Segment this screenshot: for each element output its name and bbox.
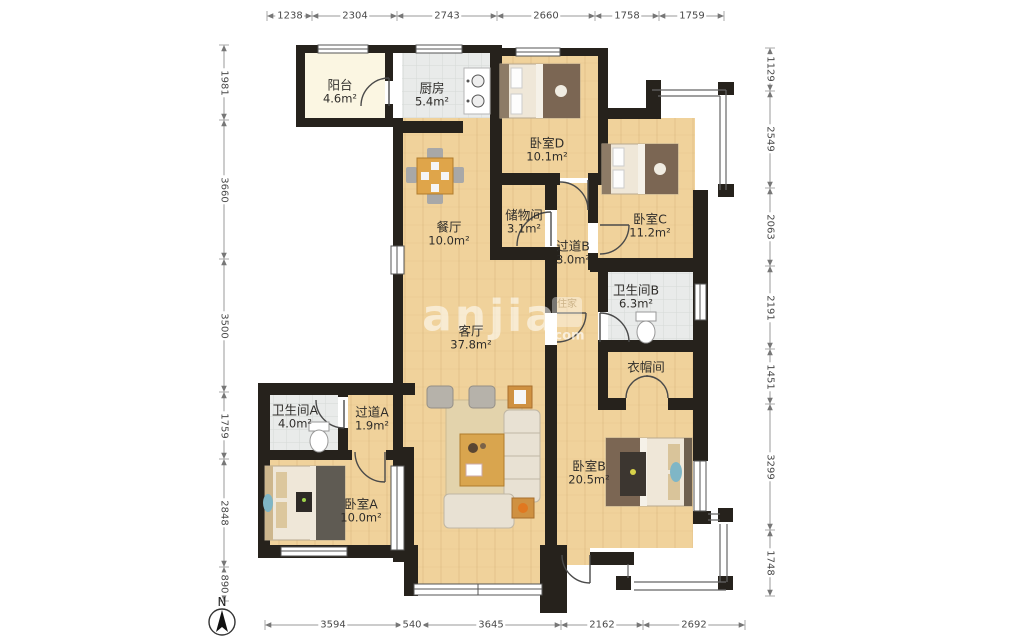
bed-icon-bedroom-b: [606, 438, 692, 506]
room-label-bedroom-d: 卧室D10.1m²: [526, 136, 567, 165]
dim-label: 890: [219, 572, 230, 595]
room-area: 4.6m²: [323, 93, 357, 107]
room-bedroom-c: [598, 118, 695, 272]
room-label-bedroom-b: 卧室B20.5m²: [568, 459, 609, 488]
room-area: 3.1m²: [505, 223, 543, 237]
window-bedroom-b-east: [694, 461, 706, 511]
window-bathroom-b-east: [695, 284, 706, 320]
dim-label: 1759: [677, 11, 706, 22]
room-label-bathroom-b: 卫生间B6.3m²: [613, 283, 659, 312]
dim-label: 1748: [765, 548, 776, 577]
watermark-badge: 住家: [552, 297, 582, 327]
dim-label: 1758: [612, 11, 641, 22]
kitchen-stove-icon: [464, 68, 490, 114]
bed-icon-bedroom-a: [263, 466, 345, 540]
watermark-suffix: .com: [549, 329, 584, 344]
room-area: 10.0m²: [340, 512, 381, 526]
room-name: 厨房: [419, 81, 444, 96]
dim-label: 2191: [765, 293, 776, 322]
dim-label: 2692: [679, 620, 708, 631]
room-area: 1.9m²: [355, 420, 389, 434]
room-area: 6.3m²: [613, 298, 659, 312]
room-name: 卫生间B: [613, 283, 659, 298]
room-name: 客厅: [458, 324, 483, 339]
room-area: 11.2m²: [629, 227, 670, 241]
dim-label: 2743: [432, 11, 461, 22]
dim-label: 3594: [318, 620, 347, 631]
dim-label: 3660: [219, 175, 230, 204]
dim-label: 2549: [765, 124, 776, 153]
room-area: 10.0m²: [428, 235, 469, 249]
dim-label: 2304: [340, 11, 369, 22]
room-label-storage: 储物间3.1m²: [505, 208, 543, 237]
dim-label: 3299: [765, 452, 776, 481]
dim-label: 1129: [765, 54, 776, 83]
room-name: 衣帽间: [627, 360, 665, 375]
dim-label: 1981: [219, 68, 230, 97]
dim-label: 2162: [587, 620, 616, 631]
room-name: 储物间: [505, 208, 543, 223]
room-label-bedroom-c: 卧室C11.2m²: [629, 212, 670, 241]
window-bedroom-a-bottom: [281, 547, 347, 556]
window-living-west: [391, 466, 404, 550]
window-bedroom-d-top: [516, 48, 560, 56]
room-area: 5.4m²: [415, 96, 449, 110]
room-label-living: 客厅37.8m²: [450, 324, 491, 353]
bed-icon-bedroom-c: [602, 144, 678, 194]
room-label-corridor-b: 过道B3.0m²: [556, 239, 590, 268]
room-name: 卧室D: [530, 136, 565, 151]
floorplan-canvas: anjia 住家 .com 阳台4.6m² 厨房5.4m² 卧室D10.1m² …: [0, 0, 1023, 638]
room-name: 卧室B: [572, 459, 606, 474]
dim-label: 2848: [219, 498, 230, 527]
dim-label: 3645: [476, 620, 505, 631]
room-label-balcony: 阳台4.6m²: [323, 78, 357, 107]
room-label-bedroom-a: 卧室A10.0m²: [340, 497, 381, 526]
room-label-cloakroom: 衣帽间: [627, 360, 665, 375]
bed-icon-bedroom-d: [500, 64, 580, 118]
room-label-kitchen: 厨房5.4m²: [415, 81, 449, 110]
dim-label: 540: [400, 620, 423, 631]
room-corridor-b: [557, 183, 588, 402]
room-label-corridor-a: 过道A1.9m²: [355, 405, 389, 434]
dim-label: 1238: [275, 11, 304, 22]
window-balcony-top: [318, 45, 368, 53]
room-name: 阳台: [327, 78, 352, 93]
entry-floor: [565, 545, 590, 565]
compass-icon: [209, 609, 235, 635]
room-name: 过道A: [355, 405, 389, 420]
dim-label: 1759: [219, 411, 230, 440]
room-area: 3.0m²: [556, 254, 590, 268]
room-name: 卫生间A: [272, 403, 318, 418]
room-name: 卧室A: [344, 497, 378, 512]
room-area: 37.8m²: [450, 339, 491, 353]
room-name: 过道B: [556, 239, 590, 254]
dim-label: 2660: [531, 11, 560, 22]
compass-north-label: N: [218, 595, 227, 609]
room-label-bathroom-a: 卫生间A4.0m²: [272, 403, 318, 432]
room-label-dining: 餐厅10.0m²: [428, 220, 469, 249]
living-bay: [414, 552, 540, 588]
room-area: 4.0m²: [272, 418, 318, 432]
window-living-bottom: [414, 584, 542, 595]
room-area: 10.1m²: [526, 151, 567, 165]
window-kitchen-top: [416, 45, 462, 53]
room-name: 餐厅: [436, 220, 461, 235]
hall-sliver: [588, 262, 598, 402]
dim-label: 3500: [219, 311, 230, 340]
dim-label: 2063: [765, 212, 776, 241]
toilet-icon-bathroom-b: [636, 312, 656, 343]
dim-label: 1451: [765, 362, 776, 391]
room-area: 20.5m²: [568, 474, 609, 488]
window-dining-west: [391, 246, 404, 274]
room-name: 卧室C: [633, 212, 667, 227]
